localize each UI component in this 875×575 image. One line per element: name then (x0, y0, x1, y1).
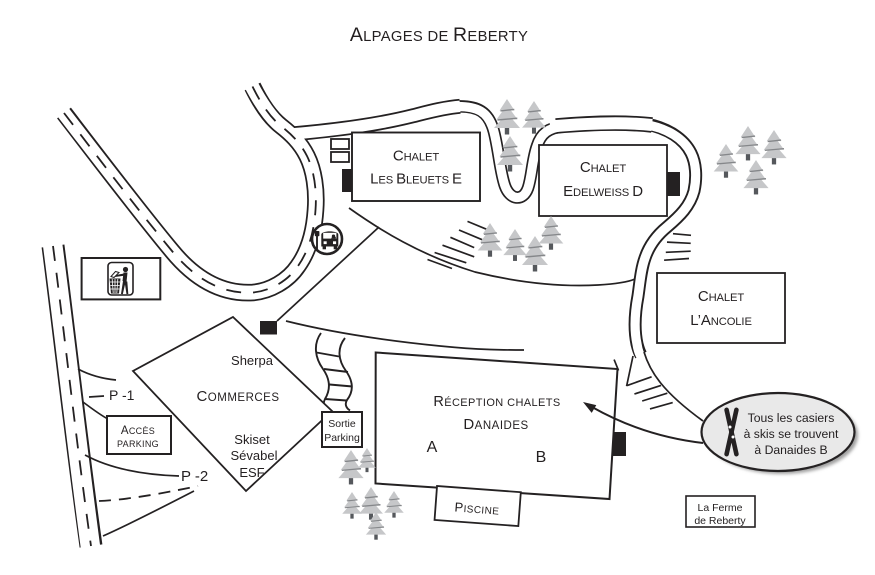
svg-text:RÉCEPTION CHALETS: RÉCEPTION CHALETS (433, 394, 560, 410)
svg-text:B: B (536, 449, 547, 466)
svg-text:Sherpa: Sherpa (231, 353, 274, 368)
svg-text:P -2: P -2 (181, 468, 208, 485)
svg-text:La Ferme: La Ferme (698, 502, 743, 514)
svg-text:A: A (427, 439, 438, 456)
svg-text:ACCÈS: ACCÈS (121, 425, 155, 437)
svg-text:Tous les casiers: Tous les casiers (748, 411, 835, 425)
svg-text:Parking: Parking (324, 432, 360, 444)
svg-text:Skiset: Skiset (234, 432, 270, 447)
svg-text:P -1: P -1 (109, 387, 135, 403)
svg-text:de Reberty: de Reberty (694, 515, 746, 527)
svg-text:Sortie: Sortie (328, 418, 356, 430)
svg-text:PARKING: PARKING (117, 439, 159, 449)
svg-text:ESF: ESF (239, 465, 264, 480)
svg-text:à skis se trouvent: à skis se trouvent (744, 427, 839, 441)
svg-text:Sévabel: Sévabel (231, 448, 278, 463)
svg-text:à Danaides B: à Danaides B (754, 443, 827, 457)
